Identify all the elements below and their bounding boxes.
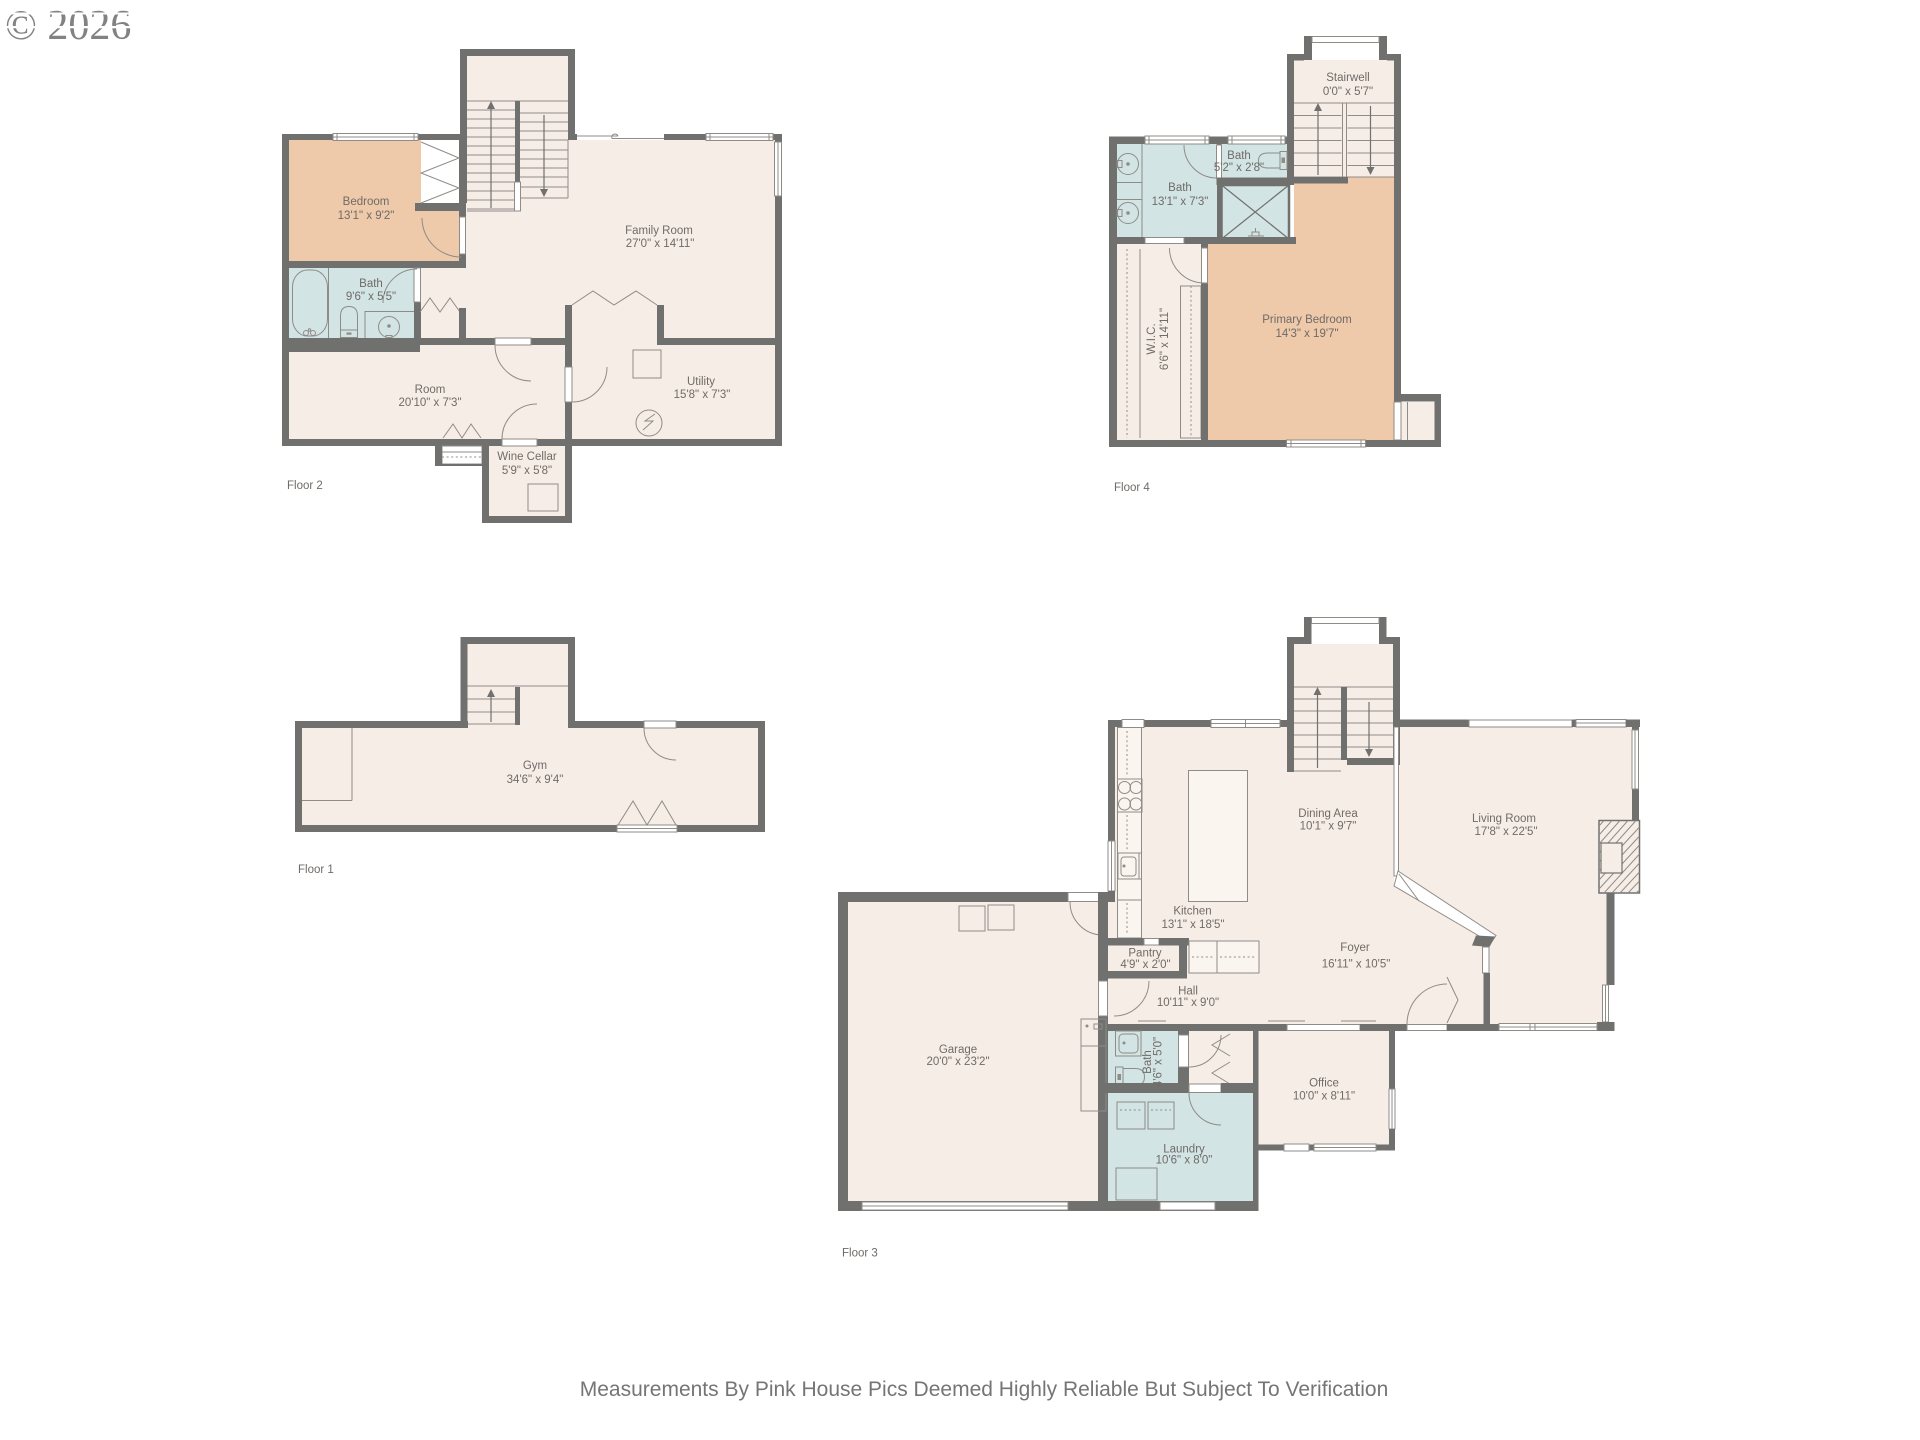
svg-text:10'11" x 9'0": 10'11" x 9'0"	[1157, 997, 1219, 1009]
svg-text:27'0" x 14'11": 27'0" x 14'11"	[626, 238, 695, 250]
svg-text:W.I.C.: W.I.C.	[1146, 323, 1158, 354]
svg-text:13'1" x 18'5": 13'1" x 18'5"	[1161, 919, 1224, 931]
svg-text:13'1" x 7'3": 13'1" x 7'3"	[1152, 196, 1209, 208]
svg-text:Floor 3: Floor 3	[842, 1248, 878, 1260]
svg-text:Bath: Bath	[359, 278, 383, 290]
svg-text:9'6" x 5'5": 9'6" x 5'5"	[346, 291, 396, 303]
svg-text:Kitchen: Kitchen	[1173, 906, 1211, 918]
svg-text:Stairwell: Stairwell	[1326, 72, 1369, 84]
svg-text:15'8" x 7'3": 15'8" x 7'3"	[674, 389, 731, 401]
svg-text:17'8" x 22'5": 17'8" x 22'5"	[1474, 826, 1537, 838]
svg-text:Family Room: Family Room	[625, 225, 693, 237]
svg-text:Floor 4: Floor 4	[1114, 482, 1150, 494]
svg-text:20'0" x 23'2": 20'0" x 23'2"	[926, 1056, 989, 1068]
svg-text:Foyer: Foyer	[1340, 942, 1370, 954]
svg-text:16'11" x 10'5": 16'11" x 10'5"	[1322, 959, 1391, 971]
svg-text:Primary Bedroom: Primary Bedroom	[1262, 314, 1351, 326]
svg-text:Room: Room	[415, 384, 446, 396]
svg-text:Bath: Bath	[1168, 182, 1192, 194]
svg-text:Garage: Garage	[939, 1044, 977, 1056]
svg-text:10'6" x 8'0": 10'6" x 8'0"	[1156, 1155, 1213, 1167]
svg-text:Hall: Hall	[1178, 986, 1198, 998]
svg-text:Wine Cellar: Wine Cellar	[497, 451, 557, 463]
svg-text:Floor 1: Floor 1	[298, 864, 334, 876]
svg-text:Bedroom: Bedroom	[343, 196, 390, 208]
svg-text:Bath: Bath	[1227, 150, 1251, 162]
svg-text:34'6" x 9'4": 34'6" x 9'4"	[507, 774, 564, 786]
svg-text:Gym: Gym	[523, 760, 547, 772]
svg-text:0'0" x 5'7": 0'0" x 5'7"	[1323, 86, 1373, 98]
svg-text:4'6" x 5'0": 4'6" x 5'0"	[1153, 1037, 1165, 1087]
svg-text:Dining Area: Dining Area	[1298, 808, 1358, 820]
svg-text:Living Room: Living Room	[1472, 813, 1536, 825]
svg-text:20'10" x 7'3": 20'10" x 7'3"	[398, 397, 461, 409]
svg-text:Floor 2: Floor 2	[287, 480, 323, 492]
svg-text:10'0" x 8'11": 10'0" x 8'11"	[1293, 1091, 1355, 1103]
svg-text:13'1" x 9'2": 13'1" x 9'2"	[338, 210, 395, 222]
svg-text:5'2" x 2'8": 5'2" x 2'8"	[1214, 162, 1264, 174]
svg-text:Office: Office	[1309, 1078, 1339, 1090]
svg-text:14'3" x 19'7": 14'3" x 19'7"	[1275, 328, 1338, 340]
svg-text:6'6" x 14'11": 6'6" x 14'11"	[1159, 308, 1171, 370]
svg-text:4'9" x 2'0": 4'9" x 2'0"	[1120, 959, 1170, 971]
svg-text:Measurements By Pink House Pic: Measurements By Pink House Pics Deemed H…	[580, 1378, 1389, 1401]
svg-text:Utility: Utility	[687, 376, 715, 388]
svg-text:5'9" x 5'8": 5'9" x 5'8"	[502, 465, 552, 477]
svg-text:Pantry: Pantry	[1128, 948, 1161, 960]
svg-text:10'1" x 9'7": 10'1" x 9'7"	[1300, 821, 1357, 833]
